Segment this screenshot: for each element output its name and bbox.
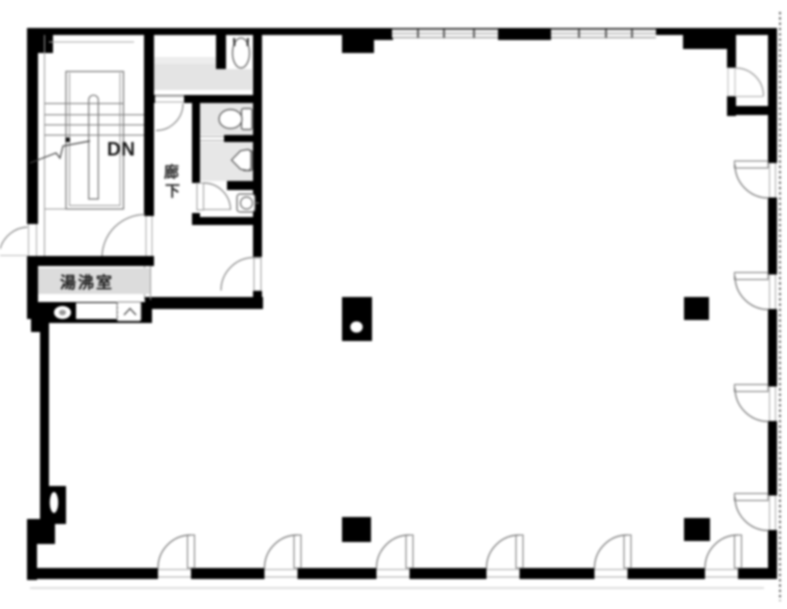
svg-text:湯沸室: 湯沸室: [60, 273, 114, 292]
svg-text:下: 下: [165, 183, 180, 200]
svg-text:DN: DN: [107, 140, 135, 161]
svg-text:廊: 廊: [164, 163, 179, 181]
